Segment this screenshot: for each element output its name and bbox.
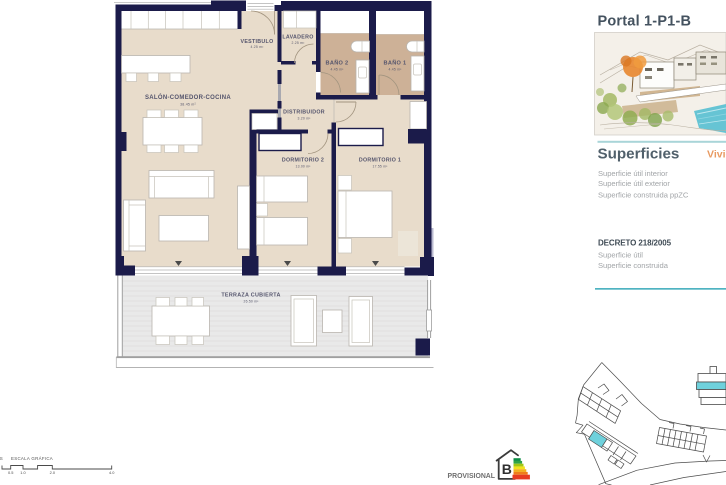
- svg-text:LAVADERO: LAVADERO: [282, 35, 313, 41]
- svg-text:Superficie útil exterior: Superficie útil exterior: [598, 179, 670, 188]
- svg-text:TERRAZA CUBIERTA: TERRAZA CUBIERTA: [221, 293, 280, 299]
- svg-text:4.45 m²: 4.45 m²: [331, 68, 345, 72]
- svg-text:17.55 m²: 17.55 m²: [373, 165, 389, 169]
- svg-text:2.25 m²: 2.25 m²: [292, 41, 306, 45]
- svg-text:Vivienda: Vivienda: [707, 149, 726, 161]
- svg-text:Superficie construida: Superficie construida: [598, 261, 669, 270]
- svg-text:Superficie útil: Superficie útil: [598, 251, 643, 260]
- svg-text:0.5: 0.5: [8, 470, 13, 475]
- svg-text:26.50 m²: 26.50 m²: [244, 300, 260, 304]
- svg-text:DORMITORIO 1: DORMITORIO 1: [359, 158, 401, 164]
- svg-text:Superficies: Superficies: [598, 146, 680, 163]
- svg-text:4.45 m²: 4.45 m²: [389, 68, 403, 72]
- svg-text:13.00 m²: 13.00 m²: [296, 165, 312, 169]
- svg-text:3.20 m²: 3.20 m²: [298, 117, 312, 121]
- svg-text:DISTRIBUIDOR: DISTRIBUIDOR: [283, 110, 325, 116]
- svg-text:4.25 m²: 4.25 m²: [251, 45, 265, 49]
- svg-text:4.0: 4.0: [109, 470, 115, 475]
- svg-text:DORMITORIO 2: DORMITORIO 2: [282, 158, 324, 164]
- svg-text:Superficie construida ppZC: Superficie construida ppZC: [598, 191, 689, 200]
- svg-text:SALÓN-COMEDOR-COCINA: SALÓN-COMEDOR-COCINA: [145, 93, 231, 101]
- svg-text:DECRETO 218/2005: DECRETO 218/2005: [598, 239, 672, 248]
- svg-text:Portal 1-P1-B: Portal 1-P1-B: [598, 14, 692, 30]
- svg-text:B: B: [502, 461, 512, 477]
- svg-text:2.0: 2.0: [50, 470, 56, 475]
- svg-text:BAÑO 1: BAÑO 1: [384, 60, 407, 67]
- svg-text:PROVISIONAL: PROVISIONAL: [448, 473, 495, 480]
- svg-text:38.45 m²: 38.45 m²: [180, 103, 196, 107]
- svg-text:OS: OS: [0, 456, 3, 461]
- svg-text:Superficie útil interior: Superficie útil interior: [598, 169, 668, 178]
- svg-text:ESCALA GRÁFICA: ESCALA GRÁFICA: [11, 456, 53, 461]
- svg-text:1.0: 1.0: [20, 470, 26, 475]
- svg-text:BAÑO 2: BAÑO 2: [326, 60, 349, 67]
